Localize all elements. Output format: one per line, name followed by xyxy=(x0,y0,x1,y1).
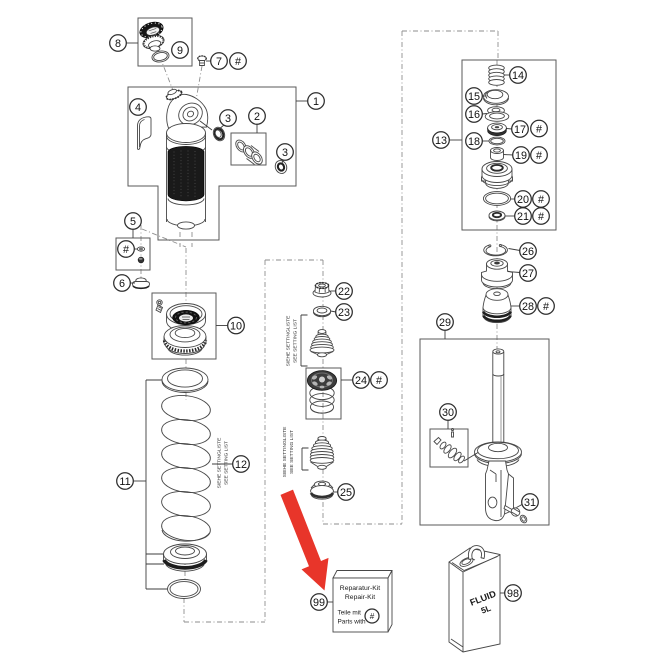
svg-text:8: 8 xyxy=(115,38,121,50)
svg-text:Teile mit: Teile mit xyxy=(338,610,362,617)
svg-text:Reparatur-Kit: Reparatur-Kit xyxy=(340,585,381,592)
svg-text:3: 3 xyxy=(225,113,231,125)
svg-text:#: # xyxy=(536,150,542,162)
svg-text:16: 16 xyxy=(468,109,480,121)
svg-text:#: # xyxy=(235,56,241,68)
svg-text:SEE SETTING LIST: SEE SETTING LIST xyxy=(224,441,230,485)
svg-text:SEE SETTING LIST: SEE SETTING LIST xyxy=(293,319,299,363)
svg-text:10: 10 xyxy=(230,320,242,332)
svg-text:18: 18 xyxy=(468,136,480,148)
svg-text:31: 31 xyxy=(524,497,536,509)
svg-text:17: 17 xyxy=(514,124,526,136)
svg-text:#: # xyxy=(376,375,382,387)
svg-text:SIEHE SETTINGLISTE: SIEHE SETTINGLISTE xyxy=(217,437,223,489)
svg-text:Parts with: Parts with xyxy=(338,619,367,626)
svg-text:12: 12 xyxy=(235,459,247,471)
svg-text:98: 98 xyxy=(507,588,519,600)
svg-text:9: 9 xyxy=(177,45,183,57)
svg-text:3: 3 xyxy=(282,147,288,159)
svg-text:26: 26 xyxy=(522,246,534,258)
svg-text:SIEHE SETTINGLISTE: SIEHE SETTINGLISTE xyxy=(286,315,292,367)
svg-text:27: 27 xyxy=(522,268,534,280)
svg-text:23: 23 xyxy=(338,307,350,319)
svg-text:99: 99 xyxy=(313,597,325,609)
svg-text:24: 24 xyxy=(355,375,367,387)
svg-text:1: 1 xyxy=(313,96,319,108)
svg-text:#: # xyxy=(538,194,544,206)
svg-text:4: 4 xyxy=(135,102,141,114)
svg-text:11: 11 xyxy=(119,476,130,488)
svg-text:#: # xyxy=(370,612,375,621)
svg-text:2: 2 xyxy=(254,111,260,123)
svg-text:13: 13 xyxy=(435,135,447,147)
svg-text:Repair-Kit: Repair-Kit xyxy=(345,594,375,601)
svg-text:#: # xyxy=(536,123,542,135)
svg-text:28: 28 xyxy=(522,301,534,313)
svg-text:14: 14 xyxy=(512,70,524,82)
svg-text:30: 30 xyxy=(442,407,454,419)
svg-text:#: # xyxy=(538,211,544,223)
svg-text:#: # xyxy=(543,301,549,313)
svg-text:29: 29 xyxy=(439,317,451,329)
svg-text:21: 21 xyxy=(517,211,529,223)
svg-text:SIEHE SETTINGLISTE: SIEHE SETTINGLISTE xyxy=(282,426,288,478)
svg-text:22: 22 xyxy=(338,286,350,298)
svg-text:7: 7 xyxy=(216,56,222,68)
svg-text:15: 15 xyxy=(468,91,480,103)
svg-text:25: 25 xyxy=(340,487,352,499)
svg-text:SEE SETTING LIST: SEE SETTING LIST xyxy=(289,430,295,474)
svg-text:5: 5 xyxy=(130,216,136,228)
svg-text:#: # xyxy=(123,244,129,256)
svg-text:20: 20 xyxy=(517,194,529,206)
svg-text:6: 6 xyxy=(119,278,125,290)
svg-text:19: 19 xyxy=(515,150,527,162)
